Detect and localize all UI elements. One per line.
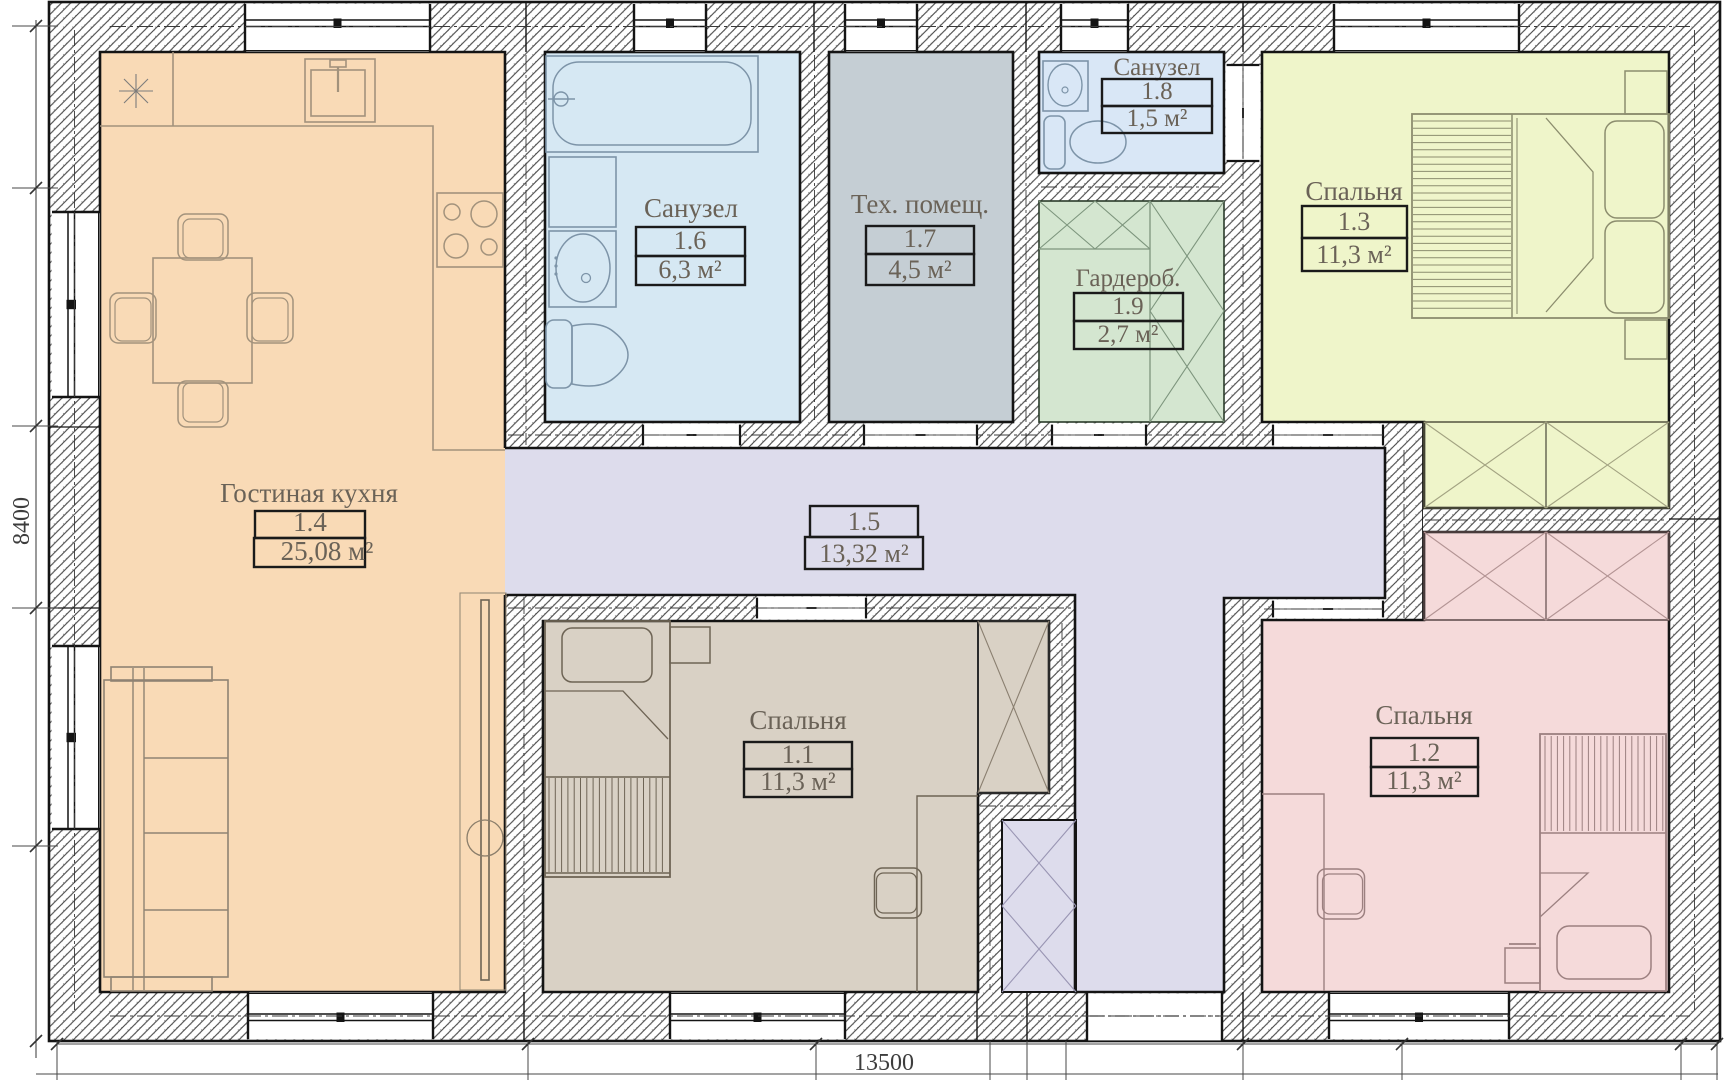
svg-text:1.5: 1.5 xyxy=(848,507,881,536)
svg-text:25,08 м²: 25,08 м² xyxy=(281,536,374,566)
svg-text:11,3 м²: 11,3 м² xyxy=(1316,240,1391,269)
svg-text:Санузел: Санузел xyxy=(1113,54,1200,81)
svg-text:1.8: 1.8 xyxy=(1141,78,1172,105)
svg-text:8400: 8400 xyxy=(9,497,35,545)
svg-text:Санузел: Санузел xyxy=(644,193,738,223)
svg-text:1.1: 1.1 xyxy=(782,740,815,769)
svg-text:11,3 м²: 11,3 м² xyxy=(760,767,835,796)
svg-text:Гостиная кухня: Гостиная кухня xyxy=(220,478,398,508)
svg-text:Спальня: Спальня xyxy=(1375,700,1472,730)
svg-text:1.2: 1.2 xyxy=(1408,738,1441,767)
svg-text:Гардероб.: Гардероб. xyxy=(1076,265,1181,292)
svg-text:11,3 м²: 11,3 м² xyxy=(1386,766,1461,795)
svg-text:4,5 м²: 4,5 м² xyxy=(888,255,951,284)
svg-text:Спальня: Спальня xyxy=(749,705,846,735)
svg-text:1.9: 1.9 xyxy=(1112,293,1143,320)
svg-text:Тех. помещ.: Тех. помещ. xyxy=(851,189,989,219)
svg-text:1.4: 1.4 xyxy=(293,507,327,537)
svg-text:2,7 м²: 2,7 м² xyxy=(1098,321,1159,348)
svg-text:6,3 м²: 6,3 м² xyxy=(658,255,721,284)
svg-text:1.7: 1.7 xyxy=(904,224,937,253)
svg-text:13,32 м²: 13,32 м² xyxy=(819,539,908,568)
svg-text:13500: 13500 xyxy=(854,1050,914,1076)
svg-text:1.6: 1.6 xyxy=(674,226,707,255)
svg-text:1.3: 1.3 xyxy=(1338,207,1371,236)
svg-text:Спальня: Спальня xyxy=(1305,176,1402,206)
svg-text:1,5 м²: 1,5 м² xyxy=(1127,105,1188,132)
